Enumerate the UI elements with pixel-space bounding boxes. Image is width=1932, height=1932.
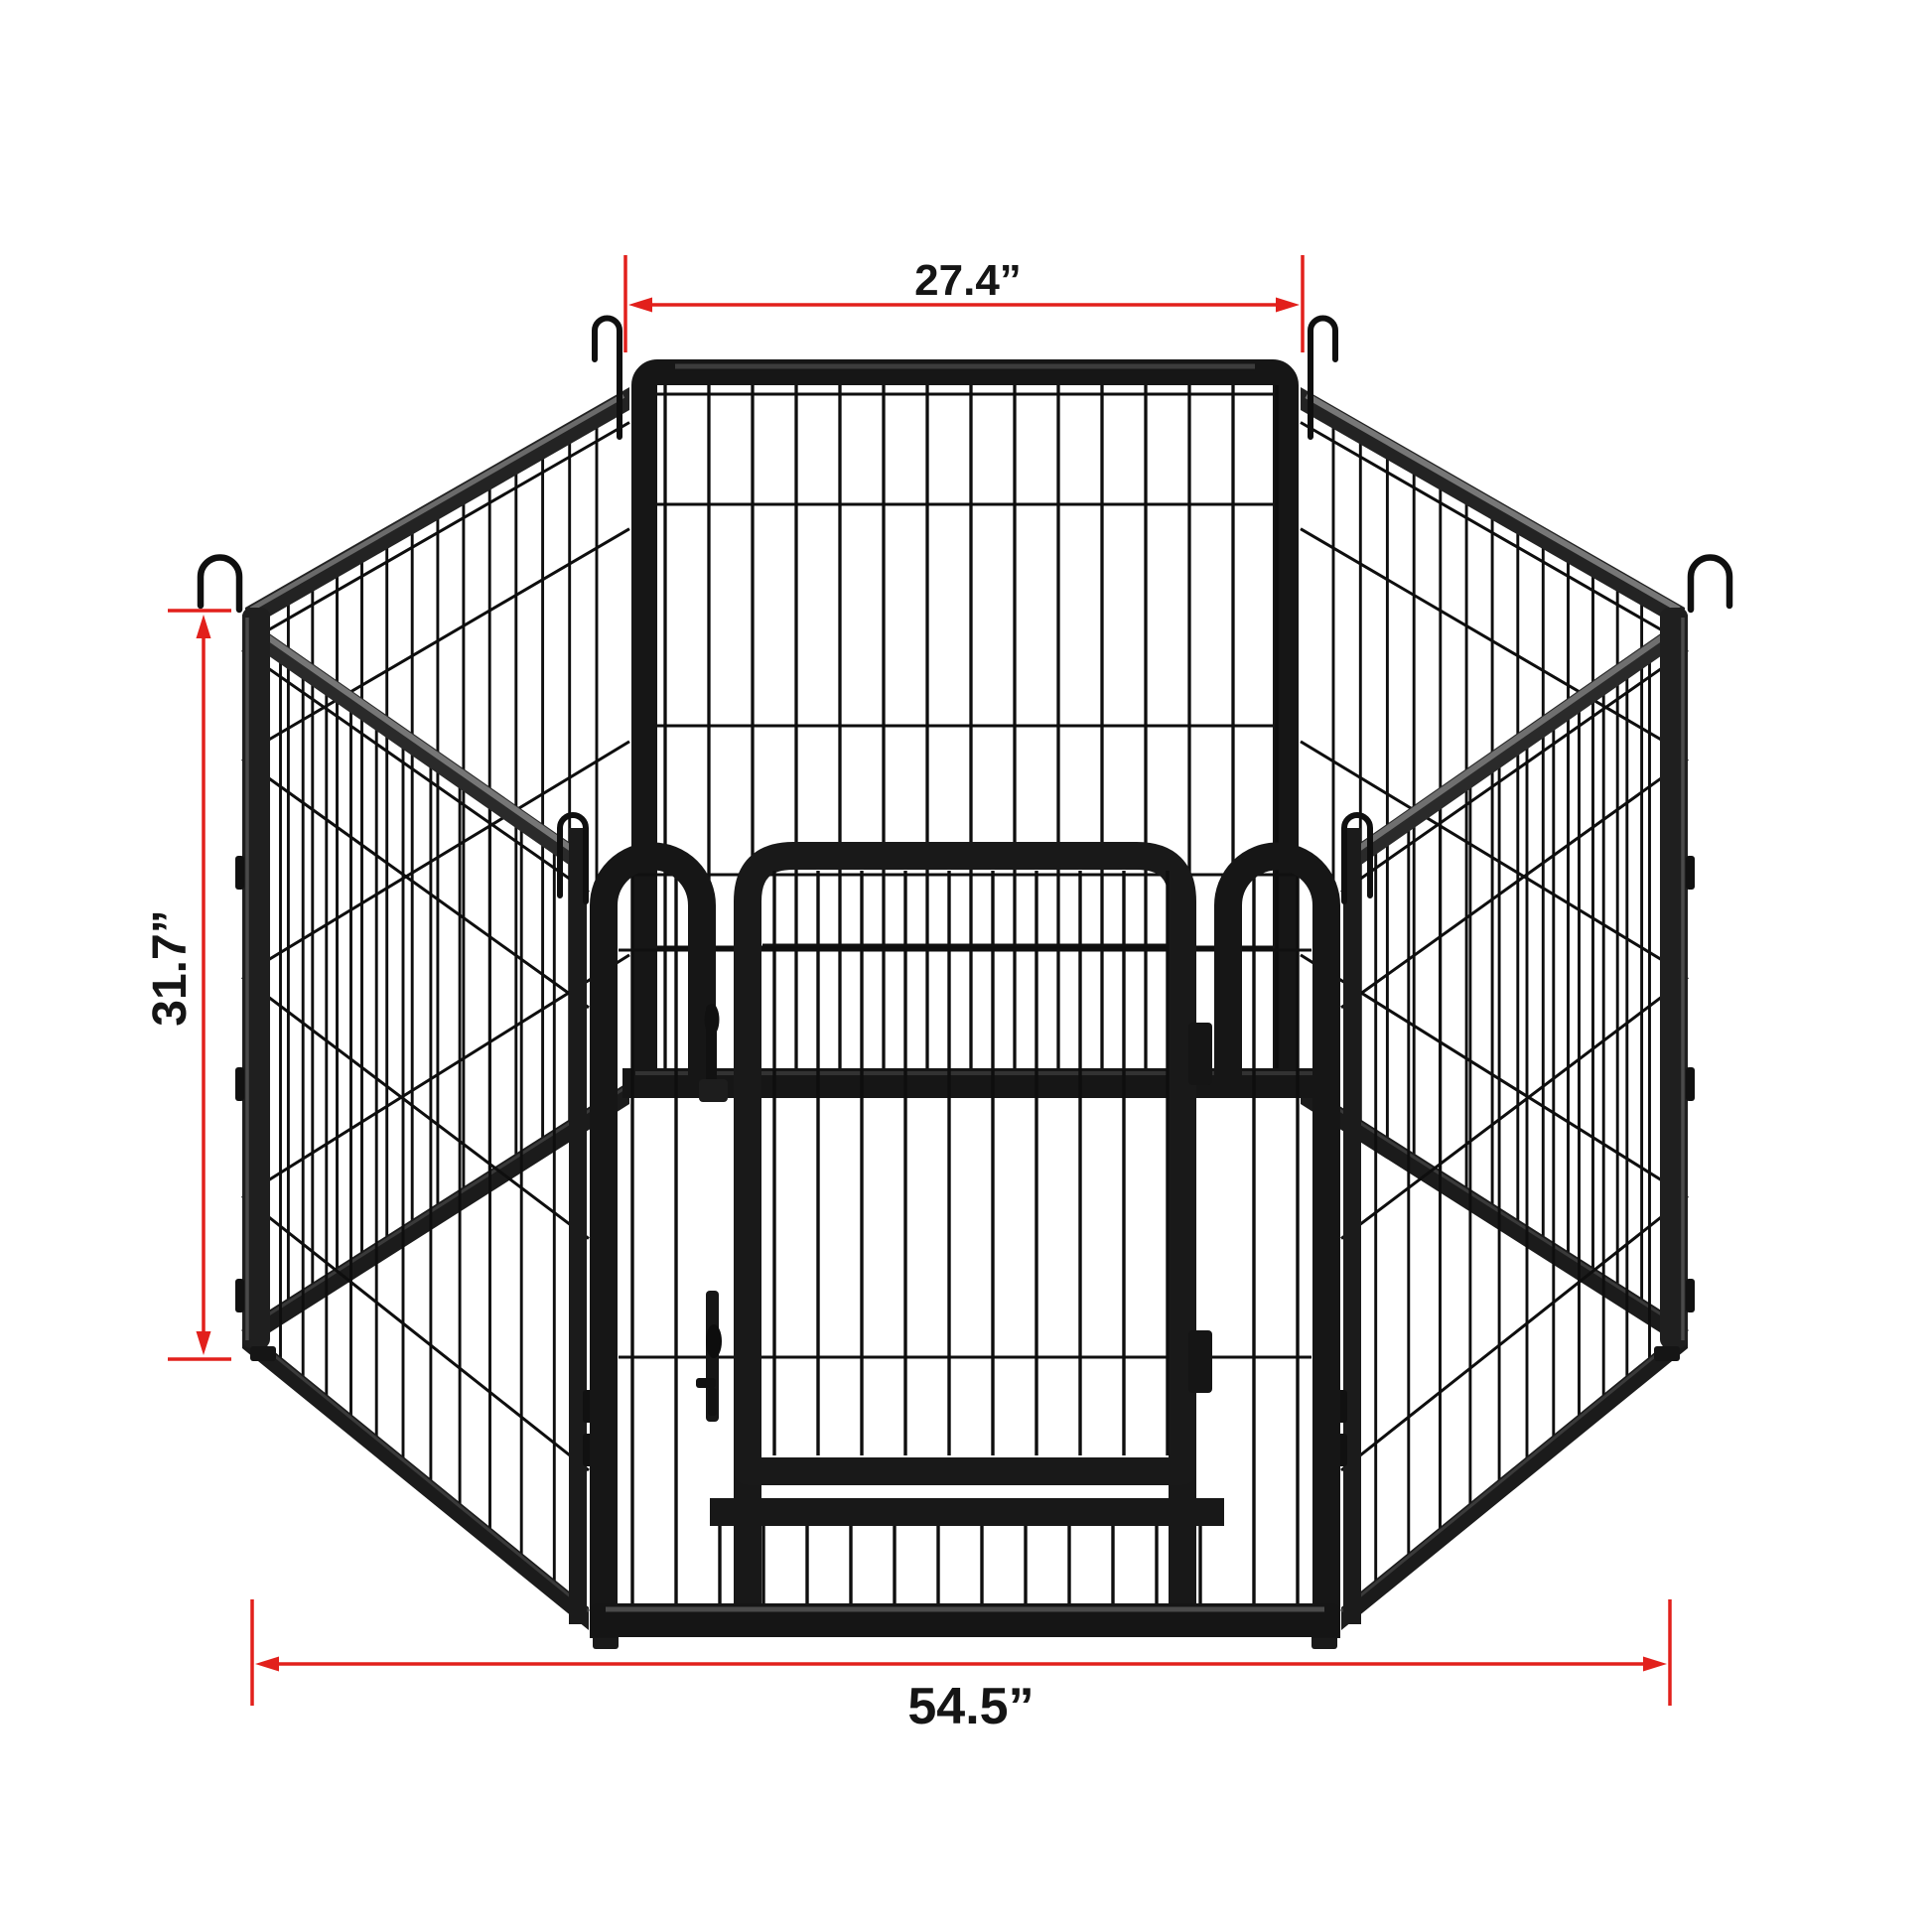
svg-text:54.5”: 54.5” — [907, 1678, 1034, 1735]
svg-text:27.4”: 27.4” — [914, 256, 1022, 305]
svg-text:31.7”: 31.7” — [144, 909, 197, 1026]
